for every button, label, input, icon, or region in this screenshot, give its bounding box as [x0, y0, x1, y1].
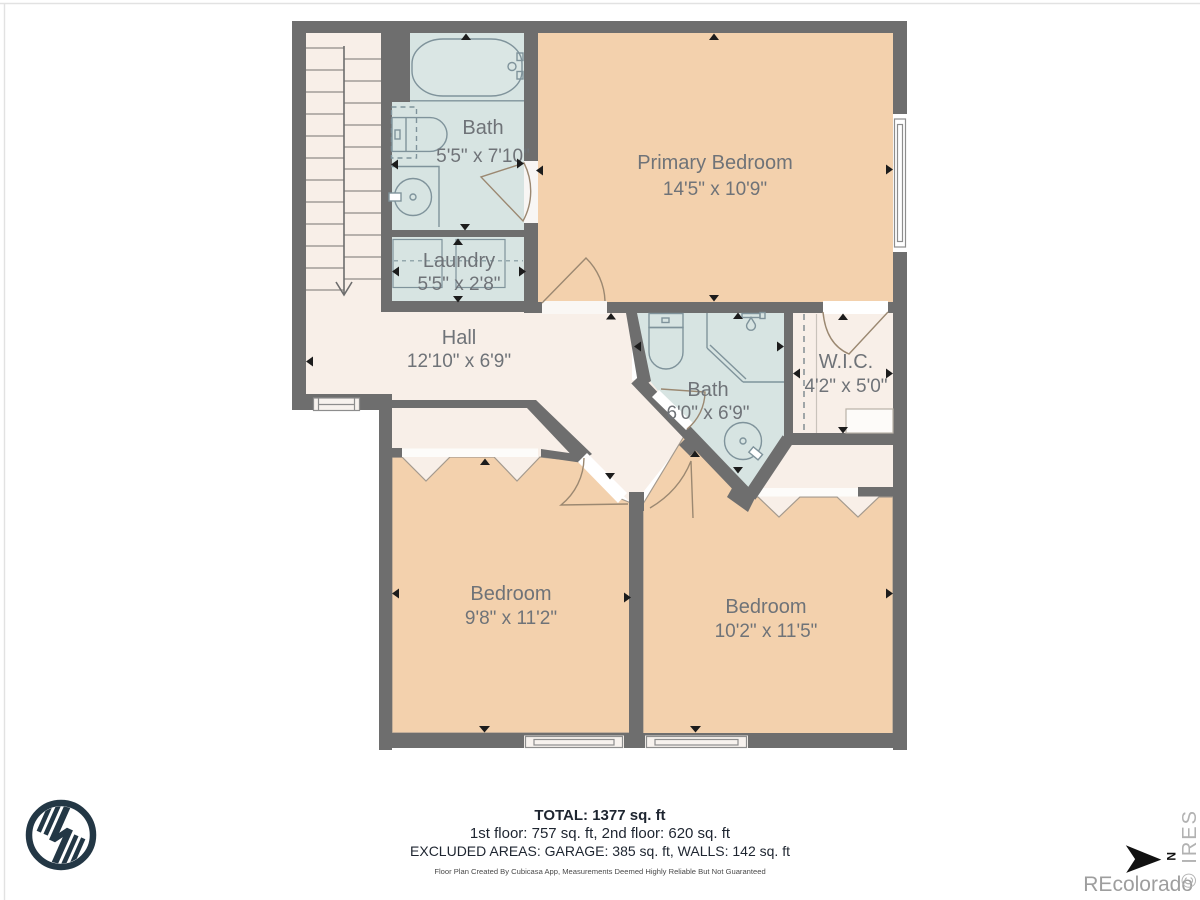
svg-text:N: N — [1164, 852, 1178, 861]
svg-text:Bath: Bath — [462, 117, 503, 139]
svg-text:14'5" x 10'9": 14'5" x 10'9" — [663, 179, 767, 200]
svg-text:EXCLUDED AREAS: GARAGE: 385 sq: EXCLUDED AREAS: GARAGE: 385 sq. ft, WALL… — [410, 843, 790, 859]
svg-text:4'2" x 5'0": 4'2" x 5'0" — [804, 376, 887, 397]
svg-text:W.I.C.: W.I.C. — [819, 351, 873, 373]
svg-text:Primary Bedroom: Primary Bedroom — [637, 152, 793, 174]
svg-text:TOTAL: 1377 sq. ft: TOTAL: 1377 sq. ft — [534, 807, 665, 824]
svg-text:10'2" x 11'5": 10'2" x 11'5" — [715, 621, 818, 642]
svg-text:Bedroom: Bedroom — [470, 583, 551, 605]
svg-text:Laundry: Laundry — [423, 250, 495, 272]
svg-text:12'10" x 6'9": 12'10" x 6'9" — [407, 351, 511, 372]
svg-text:Bedroom: Bedroom — [725, 596, 806, 618]
svg-text:5'5" x 2'8": 5'5" x 2'8" — [417, 274, 500, 295]
svg-text:Hall: Hall — [442, 327, 476, 349]
svg-text:© IRES: © IRES — [1179, 809, 1200, 888]
svg-text:Bath: Bath — [687, 379, 728, 401]
svg-text:9'8" x 11'2": 9'8" x 11'2" — [465, 608, 557, 629]
svg-text:6'0" x 6'9": 6'0" x 6'9" — [666, 403, 749, 424]
svg-text:5'5" x 7'10": 5'5" x 7'10" — [436, 146, 530, 167]
svg-text:1st floor: 757 sq. ft, 2nd flo: 1st floor: 757 sq. ft, 2nd floor: 620 sq… — [470, 825, 731, 842]
svg-text:REcolorado: REcolorado — [1083, 873, 1193, 896]
svg-text:Floor Plan Created By Cubicasa: Floor Plan Created By Cubicasa App, Meas… — [434, 867, 765, 876]
